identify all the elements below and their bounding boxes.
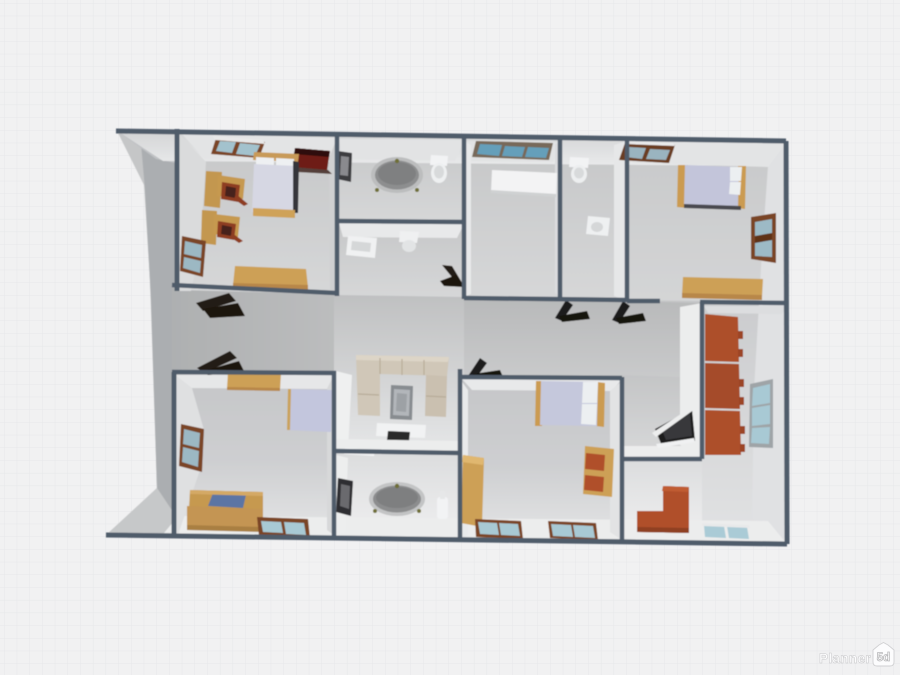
svg-text:Planner: Planner bbox=[819, 651, 871, 666]
svg-text:5d: 5d bbox=[877, 652, 890, 664]
